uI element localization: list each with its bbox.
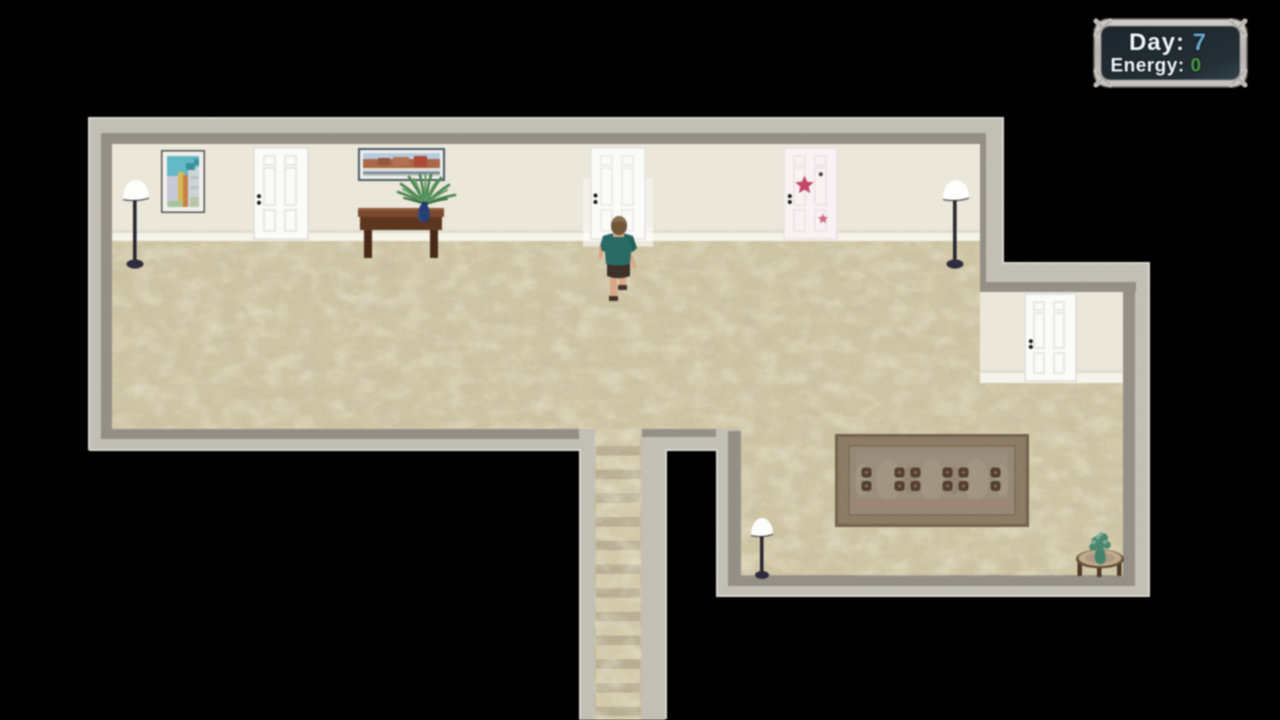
svg-text:Day: 7: Day: 7 <box>1129 29 1207 56</box>
svg-text:Energy: 0: Energy: 0 <box>1110 56 1201 77</box>
